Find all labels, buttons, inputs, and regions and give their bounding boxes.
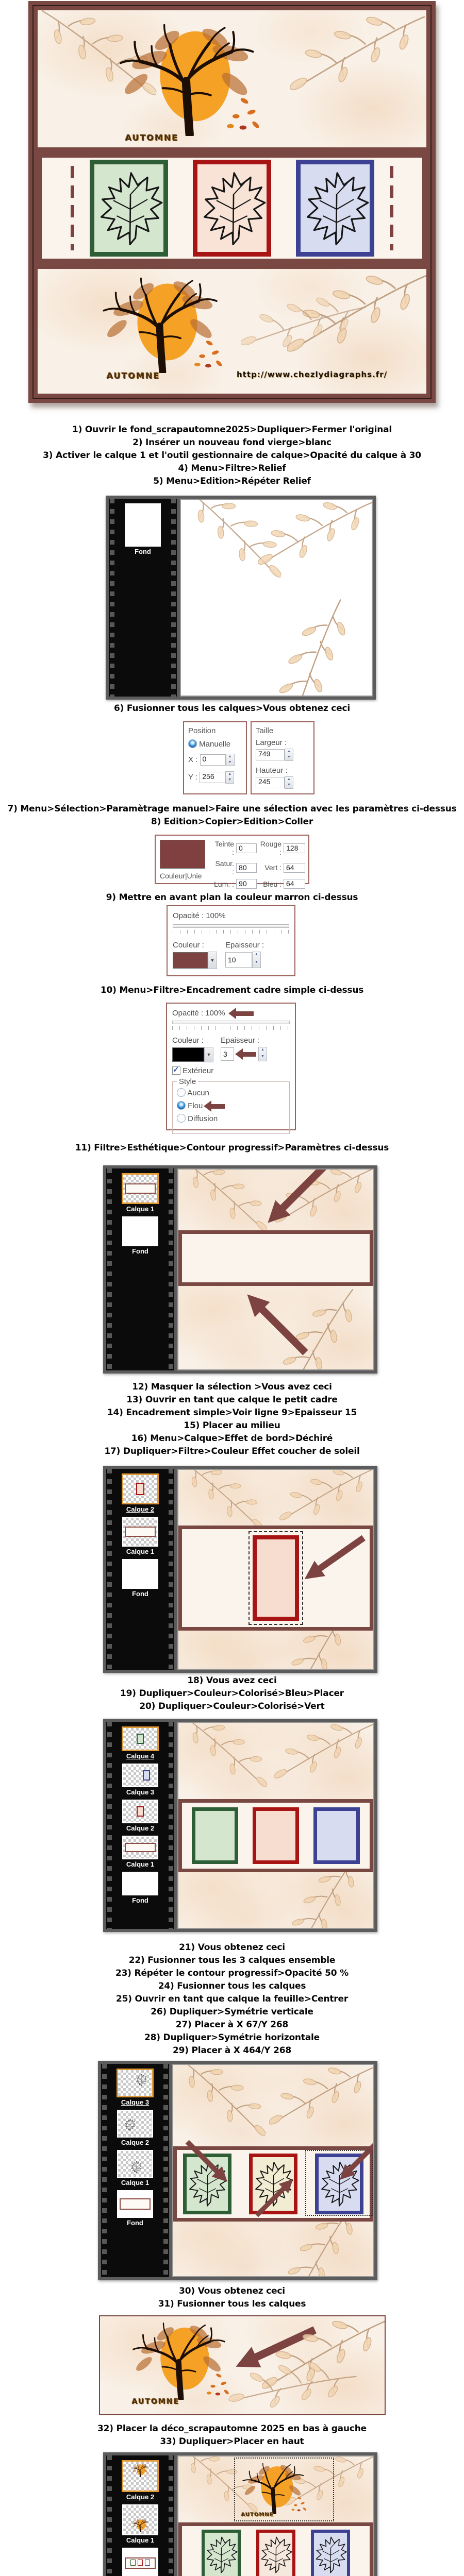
dashed-line-right	[390, 166, 393, 250]
preview-divider	[38, 147, 426, 154]
layer-thumb-fond[interactable]	[125, 503, 161, 547]
maple-leaf-icon	[81, 166, 179, 249]
canvas-preview	[177, 1722, 374, 1929]
step-25: 25) Ouvrir en tant que calque la feuille…	[0, 1993, 464, 2006]
canvas-preview	[172, 2064, 374, 2277]
slider-ticks	[172, 1026, 290, 1030]
step-23: 23) Répéter le contour progressif>Opacit…	[0, 1967, 464, 1980]
position-group-title: Position	[188, 726, 242, 735]
mini-leaf-icon	[130, 2160, 142, 2174]
step-21: 21) Vous obtenez ceci	[0, 1941, 464, 1954]
branch-decor-icon	[290, 11, 426, 94]
manuelle-radio[interactable]	[188, 739, 197, 748]
branch-decor-icon	[178, 1723, 278, 1790]
largeur-spinner[interactable]: ▲▼	[285, 749, 293, 761]
steps-block-1-5: 1) Ouvrir le fond_scrapautomne2025>Dupli…	[0, 423, 464, 488]
masked-selection-band	[178, 1230, 373, 1286]
dialog-couleur: Couleur|Unie Teinte : 0 Rouge : 128 Satu…	[155, 835, 309, 884]
layer-mini-band	[125, 1183, 156, 1194]
layer-mini-rect	[143, 1770, 150, 1781]
step-18: 18) Vous avez ceci	[0, 1674, 464, 1687]
layer-thumb-calque2[interactable]	[122, 1800, 158, 1823]
style-group-title: Style	[177, 1077, 198, 1086]
layer-label: Calque 3	[113, 1788, 167, 1796]
stamp-blue	[296, 160, 374, 257]
hauteur-spinner[interactable]: ▲▼	[285, 776, 293, 789]
preview-banner-bottom: AUTOMNE http://www.chezlydiagraphs.fr/	[38, 269, 426, 394]
contour-epaisseur-input[interactable]: 3	[221, 1047, 234, 1061]
contour-couleur-label: Couleur :	[172, 1036, 213, 1045]
hauteur-label: Hauteur :	[256, 766, 309, 775]
step-28: 28) Dupliquer>Symétrie horizontale	[0, 2031, 464, 2044]
stamp-green-leaf	[202, 2530, 241, 2576]
layer-label: Fond	[108, 2219, 162, 2227]
canvas-preview	[180, 499, 373, 697]
steps-block-30-31: 30) Vous obtenez ceci 31) Fusionner tous…	[0, 2285, 464, 2311]
y-label: Y :	[188, 773, 197, 782]
preview-title: AUTOMNE	[125, 133, 179, 143]
screenshot-red-stamp: Calque 2 Calque 1 Fond	[103, 1466, 377, 1673]
step-32: 32) Placer la déco_scrapautomne 2025 en …	[0, 2422, 464, 2435]
layers-palette: Calque 2 Calque 1 Fond	[106, 1469, 174, 1670]
satur-label: Satur. :	[212, 859, 234, 876]
vert-input[interactable]: 64	[284, 863, 305, 873]
layer-thumb-calque2[interactable]	[122, 2460, 159, 2492]
mini-stamp	[145, 2560, 150, 2566]
layer-mini-rect	[136, 1483, 144, 1495]
style-diffusion-label: Diffusion	[188, 1114, 218, 1123]
layer-label: Calque 2	[113, 1505, 167, 1513]
arrow-pointer-icon	[211, 1104, 225, 1109]
step-6: 6) Fusionner tous les calques>Vous obten…	[0, 702, 464, 715]
x-input[interactable]: 0	[200, 754, 226, 766]
layer-thumb-calque1[interactable]	[117, 2150, 153, 2178]
largeur-input[interactable]: 749	[256, 749, 285, 760]
stamp-red-torn	[253, 1535, 299, 1621]
exterieur-label: Extérieur	[183, 1066, 213, 1075]
autumn-tree-icon	[95, 271, 227, 373]
step-16: 16) Menu>Calque>Effet de bord>Déchiré	[0, 1432, 464, 1445]
layer-mini-band	[125, 1843, 156, 1852]
maple-leaf-icon	[287, 166, 385, 249]
layer-label: Fond	[113, 1590, 167, 1598]
selection-ants	[248, 1531, 303, 1625]
contour-epaisseur-spinner[interactable]: ▲▼	[258, 1047, 267, 1061]
slider-ticks	[173, 930, 289, 934]
step-30: 30) Vous obtenez ceci	[0, 2285, 464, 2298]
mini-stamp	[138, 2560, 143, 2566]
preview-stamp-band	[38, 154, 426, 263]
layer-mini-band	[125, 2557, 156, 2569]
color-swatch-brown[interactable]	[160, 840, 205, 869]
layer-label: Calque 1	[113, 2536, 167, 2544]
step-29: 29) Placer à X 464/Y 268	[0, 2044, 464, 2057]
dialog-contour-progressif: Opacité : 100% Couleur : ▼ Epaisseur : 3…	[166, 1003, 296, 1130]
preview-divider	[38, 263, 426, 269]
screenshot-three-stamps: Calque 4 Calque 3 Calque 2 Calque 1 Fond	[103, 1719, 377, 1932]
steps-block-9: 9) Mettre en avant plan la couleur marro…	[0, 891, 464, 904]
branch-decor-icon	[178, 1470, 273, 1526]
layer-label: Fond	[113, 1896, 167, 1904]
layers-palette: Calque 1 Fond	[106, 1168, 174, 1370]
maple-leaf-icon	[184, 166, 282, 249]
screenshot-trees-placed: Calque 2 Calque 1 Fond	[103, 2452, 377, 2576]
style-flou-radio[interactable]	[177, 1101, 186, 1110]
layer-thumb-fond[interactable]	[117, 2190, 153, 2218]
layer-mini-band	[120, 2198, 151, 2210]
branch-decor-icon	[178, 1170, 278, 1230]
step-8: 8) Edition>Copier>Edition>Coller	[0, 816, 464, 828]
contour-color-dropdown[interactable]: ▼	[204, 1047, 213, 1062]
autumn-tree-icon	[126, 2317, 234, 2400]
style-groupbox: Style Aucun Flou Diffusion	[172, 1081, 290, 1134]
step-14: 14) Encadrement simple>Voir ligne 9>Epai…	[0, 1406, 464, 1419]
stamp-band	[178, 1526, 373, 1631]
branch-decor-icon	[267, 1631, 373, 1669]
cadre-epaisseur-spinner[interactable]: ▲▼	[252, 952, 261, 968]
layer-thumb-calque4[interactable]	[122, 1726, 159, 1751]
step-4: 4) Menu>Filtre>Relief	[0, 462, 464, 475]
x-label: X :	[188, 755, 197, 764]
step-19: 19) Dupliquer>Couleur>Colorisé>Bleu>Plac…	[0, 1687, 464, 1700]
preview-banner-top: AUTOMNE	[38, 10, 426, 147]
layer-label: Calque 2	[108, 2139, 162, 2146]
steps-block-7-8: 7) Menu>Sélection>Paramètrage manuel>Fai…	[0, 803, 464, 828]
cadre-couleur-label: Couleur :	[173, 941, 217, 950]
maple-leaf-icon	[253, 2534, 299, 2575]
vert-label: Vert :	[258, 863, 281, 872]
branch-decor-icon	[269, 2065, 373, 2129]
layer-label: Calque 3	[108, 2098, 162, 2106]
layers-palette: Fond	[109, 499, 177, 697]
bleu-input[interactable]: 64	[284, 879, 305, 889]
layer-label: Fond	[116, 548, 170, 555]
layer-thumb-calque3[interactable]	[117, 2069, 154, 2097]
step-7: 7) Menu>Sélection>Paramètrage manuel>Fai…	[0, 803, 464, 816]
teinte-label: Teinte :	[212, 840, 234, 856]
cadre-epaisseur-input[interactable]: 10	[225, 952, 252, 968]
branch-decor-icon	[279, 1470, 373, 1522]
canvas-preview	[177, 1469, 374, 1670]
branch-decor-icon	[274, 1723, 373, 1782]
lum-label: Lum. :	[212, 880, 234, 888]
step-15: 15) Placer au milieu	[0, 1419, 464, 1432]
layer-thumb-fond[interactable]	[122, 1559, 158, 1589]
largeur-label: Largeur :	[256, 738, 309, 747]
branch-decor-icon	[262, 2222, 373, 2276]
step-1: 1) Ouvrir le fond_scrapautomne2025>Dupli…	[0, 423, 464, 436]
step-5: 5) Menu>Edition>Répéter Relief	[0, 475, 464, 488]
y-input[interactable]: 256	[200, 772, 225, 783]
steps-block-6: 6) Fusionner tous les calques>Vous obten…	[0, 702, 464, 715]
contour-color-swatch[interactable]	[172, 1047, 204, 1062]
step-3: 3) Activer le calque 1 et l'outil gestio…	[0, 449, 464, 462]
stamp-blue-leaf	[311, 2530, 350, 2576]
maple-leaf-icon	[198, 2534, 244, 2575]
step-13: 13) Ouvrir en tant que calque le petit c…	[0, 1394, 464, 1406]
lum-input[interactable]: 90	[236, 879, 257, 889]
preview-title: AUTOMNE	[107, 371, 160, 381]
stamp-green	[90, 160, 168, 257]
manuelle-label: Manuelle	[199, 740, 230, 749]
screenshot-leaves-placed: Calque 3 Calque 2 Calque 1 Fond	[98, 2061, 377, 2280]
layer-mini-rect	[137, 1734, 144, 1744]
style-aucun-radio[interactable]	[177, 1088, 186, 1097]
layer-thumb-calque2[interactable]	[117, 2110, 153, 2138]
step-10: 10) Menu>Filtre>Encadrement cadre simple…	[0, 984, 464, 997]
screenshot-masked-selection: Calque 1 Fond	[103, 1165, 377, 1374]
stamp-band	[173, 2146, 373, 2222]
layers-palette: Calque 4 Calque 3 Calque 2 Calque 1 Fond	[106, 1722, 174, 1929]
hauteur-input[interactable]: 245	[256, 777, 285, 788]
selection-ants	[234, 2458, 334, 2521]
stamp-band	[178, 1799, 373, 1872]
style-diffusion-radio[interactable]	[177, 1114, 186, 1123]
steps-block-10: 10) Menu>Filtre>Encadrement cadre simple…	[0, 984, 464, 997]
layer-thumb-calque1[interactable]	[122, 1173, 159, 1204]
step-27: 27) Placer à X 67/Y 268	[0, 2019, 464, 2031]
layer-thumb-fond[interactable]	[122, 2548, 158, 2576]
arrow-pointer-icon	[243, 1052, 256, 1057]
layers-palette: Calque 2 Calque 1 Fond	[106, 2455, 174, 2576]
branch-decor-icon	[258, 499, 373, 569]
step-33: 33) Dupliquer>Placer en haut	[0, 2435, 464, 2448]
layer-thumb-calque1[interactable]	[122, 2504, 158, 2535]
taille-group-title: Taille	[256, 726, 309, 735]
steps-block-11: 11) Filtre>Esthétique>Contour progressif…	[0, 1142, 464, 1155]
site-url: http://www.chezlydiagraphs.fr/	[237, 370, 387, 379]
step-11: 11) Filtre>Esthétique>Contour progressif…	[0, 1142, 464, 1155]
step-20: 20) Dupliquer>Couleur>Colorisé>Vert	[0, 1700, 464, 1713]
dialog-position: Position Manuelle X : 0▲▼ Y : 256▲▼	[183, 721, 247, 794]
steps-block-12-17: 12) Masquer la sélection >Vous avez ceci…	[0, 1381, 464, 1458]
exterieur-checkbox[interactable]: ✓	[172, 1066, 180, 1075]
mini-leaf-icon	[136, 2073, 147, 2087]
layer-label: Calque 4	[113, 1752, 167, 1760]
steps-block-32-33: 32) Placer la déco_scrapautomne 2025 en …	[0, 2422, 464, 2448]
layer-thumb-calque3[interactable]	[122, 1764, 158, 1787]
mini-stamp	[130, 2560, 136, 2566]
step-22: 22) Fusionner tous les 3 calques ensembl…	[0, 1954, 464, 1967]
bleu-label: Bleu :	[258, 880, 281, 888]
preview-title: AUTOMNE	[132, 2398, 179, 2406]
layer-thumb-calque1[interactable]	[122, 1517, 158, 1547]
stamp-band	[178, 2522, 373, 2576]
satur-input[interactable]: 80	[236, 863, 257, 873]
mini-tree-icon	[130, 2463, 150, 2477]
result-preview-frame: AUTOMNE	[28, 1, 436, 403]
step-31: 31) Fusionner tous les calques	[0, 2298, 464, 2311]
rouge-input[interactable]: 128	[284, 843, 305, 853]
y-spinner[interactable]: ▲▼	[225, 771, 234, 784]
layer-label: Calque 2	[113, 2493, 167, 2501]
stamp-blue-torn	[313, 1807, 360, 1864]
layer-label: Calque 1	[113, 1205, 167, 1213]
steps-block-18-20: 18) Vous avez ceci 19) Dupliquer>Couleur…	[0, 1674, 464, 1713]
cadre-epaisseur-label: Epaisseur :	[225, 941, 264, 950]
layers-palette: Calque 3 Calque 2 Calque 1 Fond	[101, 2064, 169, 2277]
layer-thumb-calque1[interactable]	[122, 1836, 158, 1859]
cadre-opacite-label: Opacité : 100%	[173, 911, 289, 920]
deco-tree-banner: AUTOMNE	[99, 2315, 386, 2415]
style-flou-label: Flou	[188, 1101, 203, 1110]
mini-leaf-icon	[124, 2118, 136, 2131]
step-17: 17) Dupliquer>Filtre>Couleur Effet couch…	[0, 1445, 464, 1458]
contour-opacite-label: Opacité : 100%	[172, 1009, 225, 1018]
canvas-preview: AUTOMNE AUTOMNE	[177, 2455, 374, 2576]
dialog-cadre-simple: Opacité : 100% Couleur : ▼ Epaisseur : 1…	[167, 905, 295, 976]
branch-decor-icon	[173, 2065, 279, 2141]
contour-opacity-slider[interactable]	[172, 1021, 290, 1024]
tutorial-page: AUTOMNE	[0, 0, 464, 2576]
style-aucun-label: Aucun	[187, 1089, 209, 1097]
step-26: 26) Dupliquer>Symétrie verticale	[0, 2006, 464, 2019]
rouge-label: Rouge :	[258, 840, 281, 856]
layer-label: Calque 1	[113, 1860, 167, 1868]
step-12: 12) Masquer la sélection >Vous avez ceci	[0, 1381, 464, 1394]
layer-label: Fond	[113, 1247, 167, 1255]
branch-decor-icon	[245, 591, 373, 697]
steps-block-21-29: 21) Vous obtenez ceci 22) Fusionner tous…	[0, 1941, 464, 2057]
layer-thumb-fond[interactable]	[122, 1216, 158, 1246]
stamp-green-torn	[192, 1807, 238, 1864]
teinte-input[interactable]: 0	[236, 843, 257, 853]
contour-epaisseur-label: Epaisseur :	[221, 1036, 267, 1045]
cadre-color-swatch[interactable]	[173, 952, 208, 969]
arrow-pointer-icon	[299, 1530, 369, 1587]
stamp-red-leaf	[256, 2530, 295, 2576]
canvas-preview	[177, 1168, 374, 1370]
autumn-tree-icon	[111, 16, 266, 136]
layer-label: Calque 2	[113, 1824, 167, 1832]
step-24: 24) Fusionner tous les calques	[0, 1980, 464, 1993]
cadre-opacity-slider[interactable]	[173, 924, 289, 928]
arrow-pointer-icon	[236, 1011, 254, 1016]
layer-mini-band	[125, 1527, 156, 1537]
maple-leaf-icon	[307, 2534, 354, 2575]
couleur-unie-label: Couleur|Unie	[160, 872, 207, 880]
step-9: 9) Mettre en avant plan la couleur marro…	[0, 891, 464, 904]
branch-decor-icon	[268, 1872, 373, 1928]
layer-label: Calque 1	[108, 2179, 162, 2187]
cadre-color-dropdown[interactable]: ▼	[208, 952, 217, 969]
x-spinner[interactable]: ▲▼	[226, 754, 235, 766]
step-2: 2) Insérer un nouveau fond vierge>blanc	[0, 436, 464, 449]
stamp-red	[193, 160, 271, 257]
layer-mini-rect	[137, 1806, 144, 1817]
layer-thumb-fond[interactable]	[122, 1872, 158, 1895]
dialog-taille: Taille Largeur : 749▲▼ Hauteur : 245▲▼	[251, 721, 314, 794]
layer-label: Calque 1	[113, 1548, 167, 1555]
mini-tree-icon	[130, 2518, 150, 2532]
layer-thumb-calque2[interactable]	[122, 1473, 159, 1504]
stamp-red-torn	[253, 1807, 299, 1864]
screenshot-layers-fond: Fond	[106, 496, 376, 700]
dashed-line-left	[71, 166, 74, 250]
